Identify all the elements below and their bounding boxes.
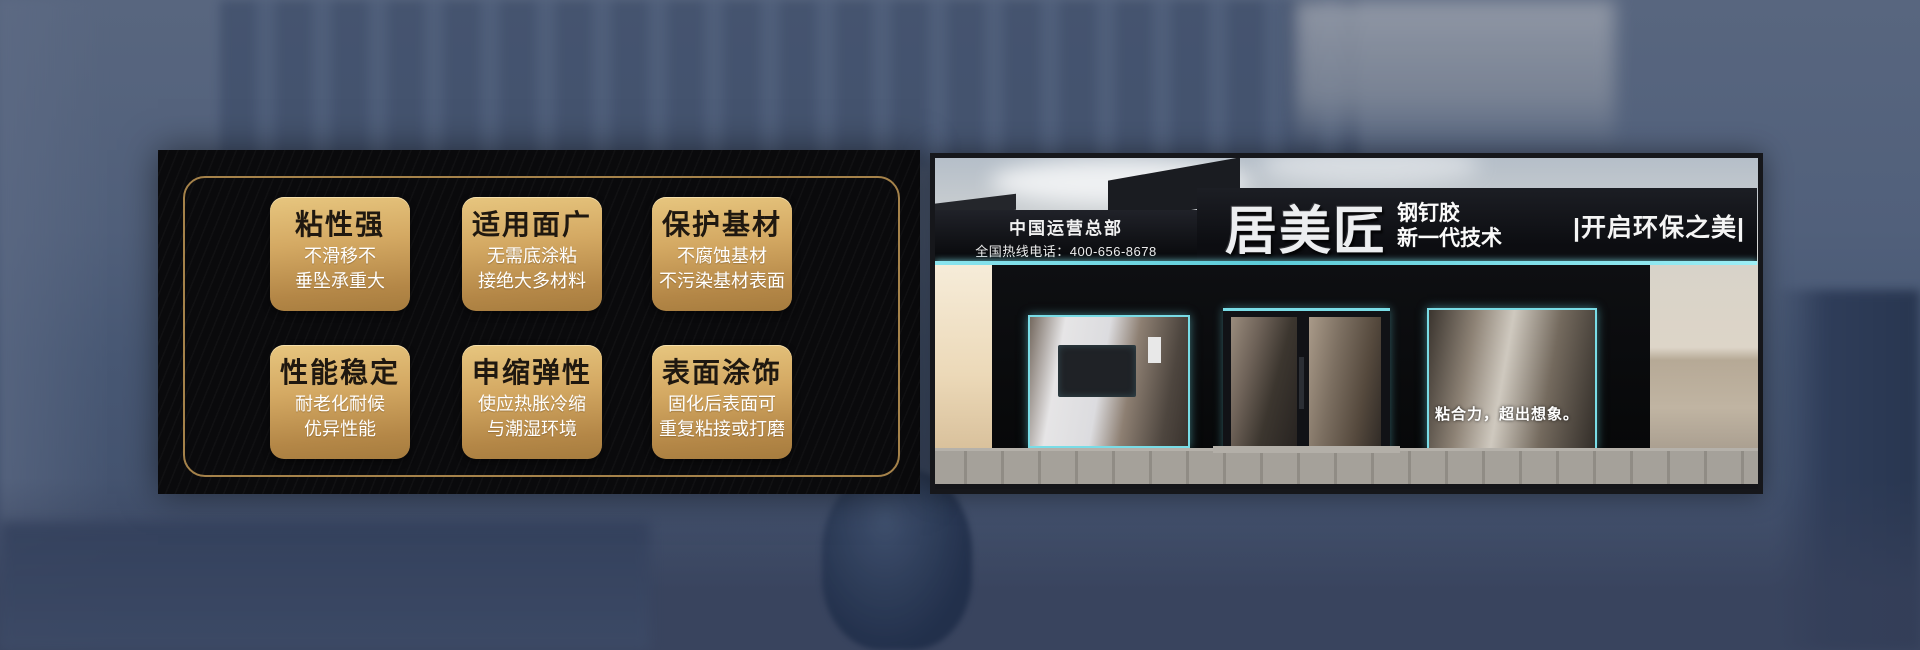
subtitle-line: 接绝大多材料 — [462, 269, 602, 294]
storefront-photo: 中国运营总部 全国热线电话：400-656-8678 居美匠 钢钉胶 新一代技术… — [930, 153, 1763, 494]
feature-card-paintable: 表面涂饰 固化后表面可 重复粘接或打磨 — [652, 345, 792, 459]
feature-card-subtitle: 使应热胀冷缩 与潮湿环境 — [462, 392, 602, 442]
sidewalk — [930, 448, 1763, 484]
feature-card-protect: 保护基材 不腐蚀基材 不污染基材表面 — [652, 197, 792, 311]
subtitle-line: 垂坠承重大 — [270, 269, 410, 294]
subtitle-line: 耐老化耐候 — [270, 392, 410, 417]
feature-card-wide-use: 适用面广 无需底涂粘 接绝大多材料 — [462, 197, 602, 311]
window-logo — [1148, 337, 1161, 363]
feature-card-title: 申缩弹性 — [462, 357, 602, 388]
feature-card-elastic: 申缩弹性 使应热胀冷缩 与潮湿环境 — [462, 345, 602, 459]
subtitle-line: 优异性能 — [270, 417, 410, 442]
feature-card-title: 粘性强 — [270, 209, 410, 240]
subtitle-line: 不滑移不 — [270, 244, 410, 269]
tech-line: 新一代技术 — [1397, 226, 1502, 251]
brand-sign: 居美匠 钢钉胶 新一代技术 |开启环保之美| — [1197, 188, 1757, 264]
entrance-step — [1213, 446, 1400, 453]
feature-card-title: 性能稳定 — [270, 357, 410, 388]
feature-panel: 粘性强 不滑移不 垂坠承重大 适用面广 无需底涂粘 接绝大多材料 保护基材 不腐… — [158, 150, 920, 494]
display-board — [1058, 345, 1136, 397]
background-vase — [822, 468, 972, 650]
photo-bottom-edge — [930, 484, 1763, 494]
hq-hotline: 全国热线电话：400-656-8678 — [975, 241, 1156, 260]
left-display-window — [1028, 315, 1190, 448]
feature-card-subtitle: 耐老化耐候 优异性能 — [270, 392, 410, 442]
feature-card-subtitle: 不腐蚀基材 不污染基材表面 — [652, 244, 792, 294]
background-table — [0, 522, 650, 650]
feature-card-title: 适用面广 — [462, 209, 602, 240]
entrance-doors — [1223, 308, 1390, 460]
feature-card-title: 保护基材 — [652, 209, 792, 240]
product-name: 钢钉胶 — [1397, 201, 1502, 226]
subtitle-line: 重复粘接或打磨 — [652, 417, 792, 442]
subtitle-line: 使应热胀冷缩 — [462, 392, 602, 417]
background-wall-light — [1295, 0, 1615, 150]
door-glass — [1309, 317, 1381, 457]
subtitle-line: 不污染基材表面 — [652, 269, 792, 294]
open-sky-ground — [1650, 265, 1763, 448]
right-display-window: 粘合力，超出想象。 — [1427, 308, 1597, 450]
subtitle-line: 无需底涂粘 — [462, 244, 602, 269]
feature-card-subtitle: 无需底涂粘 接绝大多材料 — [462, 244, 602, 294]
feature-card-title: 表面涂饰 — [652, 357, 792, 388]
subtitle-line: 固化后表面可 — [652, 392, 792, 417]
door-glass — [1231, 317, 1297, 457]
subtitle-line: 不腐蚀基材 — [652, 244, 792, 269]
feature-card-subtitle: 不滑移不 垂坠承重大 — [270, 244, 410, 294]
window-slogan: 粘合力，超出想象。 — [1435, 403, 1579, 424]
brand-tagline: 钢钉胶 新一代技术 — [1397, 201, 1502, 251]
subtitle-line: 与潮湿环境 — [462, 417, 602, 442]
eco-slogan: |开启环保之美| — [1573, 208, 1745, 244]
promo-banner: 粘性强 不滑移不 垂坠承重大 适用面广 无需底涂粘 接绝大多材料 保护基材 不腐… — [0, 0, 1920, 650]
feature-card-adhesion: 粘性强 不滑移不 垂坠承重大 — [270, 197, 410, 311]
feature-card-stable: 性能稳定 耐老化耐候 优异性能 — [270, 345, 410, 459]
door-handle — [1299, 357, 1304, 409]
feature-card-subtitle: 固化后表面可 重复粘接或打磨 — [652, 392, 792, 442]
hq-title: 中国运营总部 — [1009, 214, 1123, 239]
brand-name: 居美匠 — [1225, 189, 1387, 264]
side-wall — [930, 265, 992, 448]
background-blinds — [220, 0, 1360, 168]
cloud — [1260, 153, 1480, 185]
hq-sign: 中国运营总部 全国热线电话：400-656-8678 — [935, 210, 1197, 264]
